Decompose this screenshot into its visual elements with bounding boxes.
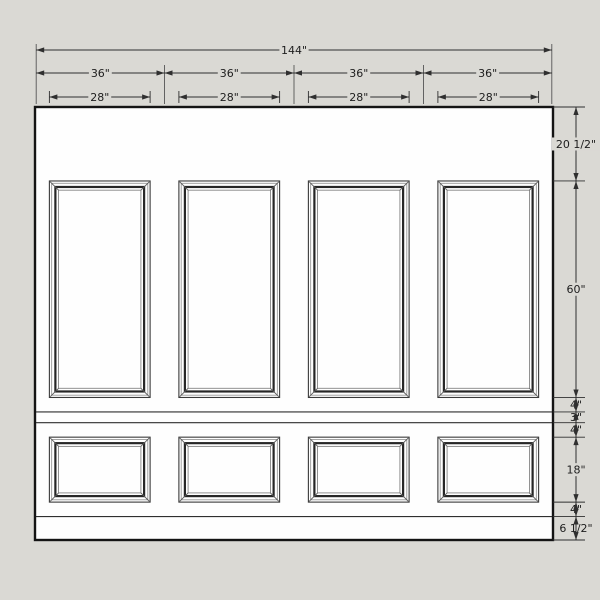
wall — [35, 107, 553, 540]
wainscoting-elevation-drawing: 144"36"28"36"28"36"28"36"28"20 1/2"60"4"… — [0, 0, 600, 600]
dim-label: 28" — [349, 91, 368, 104]
dim-label: 20 1/2" — [556, 138, 596, 151]
dim-label: 144" — [281, 44, 307, 57]
wall-elevation-svg: 144"36"28"36"28"36"28"36"28"20 1/2"60"4"… — [0, 0, 600, 600]
dim-label: 60" — [566, 283, 585, 296]
dim-height-3: 4" — [570, 397, 582, 411]
dim-label: 28" — [220, 91, 239, 104]
dim-label: 18" — [566, 463, 585, 476]
dim-label: 36" — [220, 67, 239, 80]
dim-label: 36" — [478, 67, 497, 80]
dim-height-7: 4" — [570, 502, 582, 516]
dim-label: 36" — [91, 67, 110, 80]
dim-label: 36" — [349, 67, 368, 80]
dim-height-5: 4" — [570, 423, 582, 437]
dim-label: 28" — [90, 91, 109, 104]
dim-height-4: 3" — [570, 411, 582, 424]
dim-label: 28" — [479, 91, 498, 104]
